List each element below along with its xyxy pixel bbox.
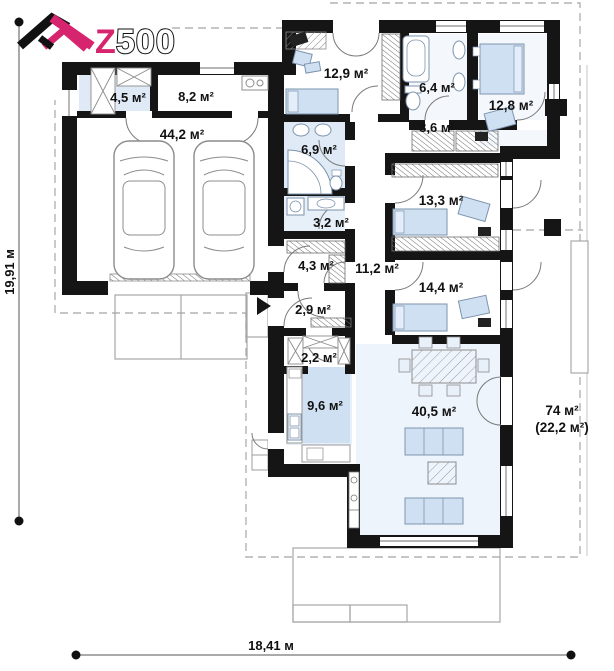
label-terrace-covered: (22,2 м²) (535, 420, 589, 435)
kitchen-appliance-column (349, 472, 359, 528)
label-entry: 2,9 м² (295, 302, 331, 317)
logo-numbers: 500 (116, 23, 176, 61)
z500-logo (20, 18, 92, 49)
label-corridor: 11,2 м² (355, 261, 399, 276)
utility-sink-counter (242, 76, 268, 90)
label-kitchen: 9,6 м² (307, 398, 343, 413)
label-pantry: 2,2 м² (301, 350, 337, 365)
label-laundry: 3,2 м² (313, 215, 349, 230)
dimension-width-label: 18,41 м (248, 638, 294, 653)
driveway (115, 295, 247, 359)
bedroom-low-furniture (393, 295, 491, 331)
car-left (114, 141, 174, 279)
label-bedroom-mid: 13,3 м² (419, 193, 464, 208)
label-utility: 8,2 м² (178, 89, 214, 104)
label-bedroom-top: 12,9 м² (324, 66, 369, 81)
floor-plan-drawing: Z 500 4,5 м² 8,2 м² 44,2 м² 12,9 м² 6,4 … (0, 0, 614, 671)
terrace-planter (571, 241, 588, 373)
label-storage: 4,5 м² (110, 90, 146, 105)
label-hall-wardrobe: 3,6 м² (419, 120, 455, 135)
label-terrace-total: 74 м² (545, 403, 579, 418)
kitchen-porch-steps (252, 440, 268, 470)
logo-letter-z: Z (95, 23, 116, 61)
label-bathroom-main: 6,4 м² (419, 80, 455, 95)
label-bedroom-right: 12,8 м² (489, 98, 534, 113)
label-bedroom-low: 14,4 м² (419, 280, 464, 295)
floor-plan: Z 500 4,5 м² 8,2 м² 44,2 м² 12,9 м² 6,4 … (0, 0, 614, 671)
car-right (194, 141, 254, 279)
bottom-terrace (293, 548, 500, 622)
label-bathroom-left: 6,9 м² (301, 142, 337, 157)
dimension-width (72, 651, 576, 660)
label-living: 40,5 м² (412, 404, 457, 419)
label-wardrobe: 4,3 м² (298, 258, 334, 273)
dimension-height-label: 19,91 м (2, 249, 17, 295)
label-garage: 44,2 м² (160, 127, 205, 142)
